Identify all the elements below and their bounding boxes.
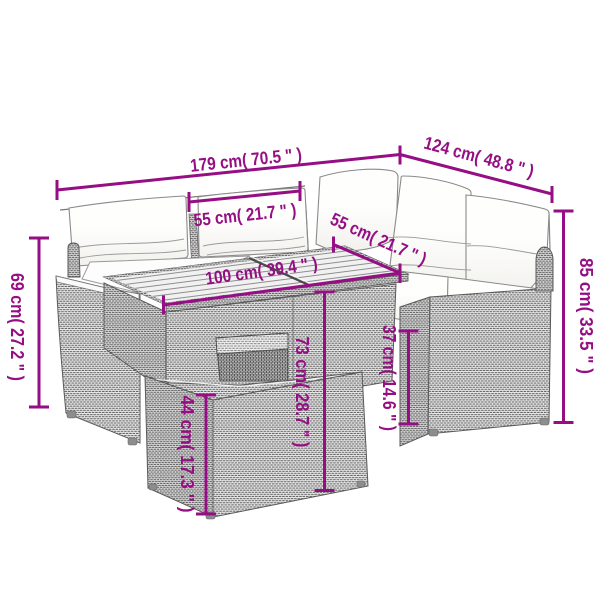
svg-text:37 cm( 14.6 " ): 37 cm( 14.6 " ) <box>379 325 399 431</box>
svg-text:73 cm( 28.7 " ): 73 cm( 28.7 " ) <box>292 337 312 448</box>
svg-text:44 cm( 17.3 " ): 44 cm( 17.3 " ) <box>177 396 197 513</box>
svg-text:85 cm( 33.5 " ): 85 cm( 33.5 " ) <box>576 258 596 374</box>
svg-text:69 cm( 27.2 " ): 69 cm( 27.2 " ) <box>7 273 27 381</box>
